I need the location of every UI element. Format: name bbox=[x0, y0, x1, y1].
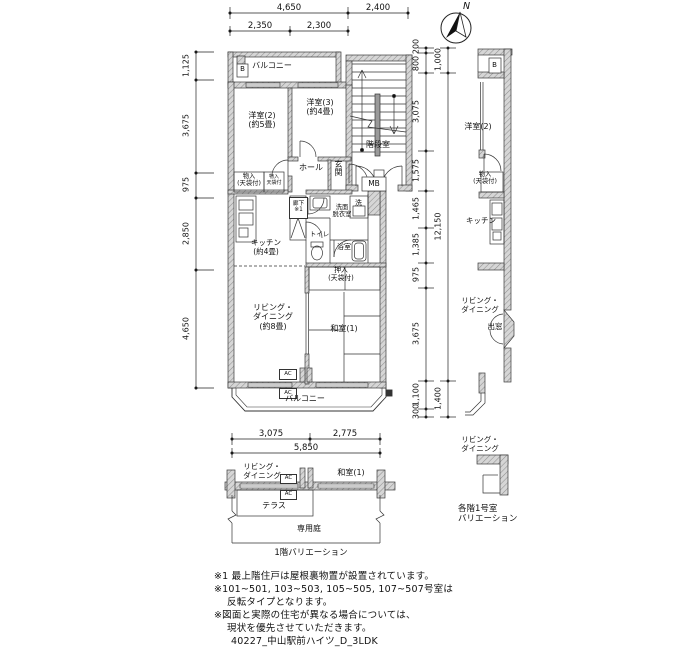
label-toilet: トイレ bbox=[307, 231, 332, 239]
label-mb: MB bbox=[364, 180, 384, 189]
ac-unit-1f-a: AC bbox=[280, 474, 297, 484]
label-entrance: 玄関 bbox=[333, 161, 344, 178]
dim-top-2300: 2,300 bbox=[299, 21, 339, 31]
variation-right-walls bbox=[465, 49, 514, 495]
dim-ro-1000: 1,000 bbox=[434, 38, 445, 82]
label-terrace: テラス bbox=[258, 501, 290, 510]
label-right-bedroom2: 洋室(2) bbox=[459, 122, 497, 131]
label-bedroom2: 洋室(2) (約5畳) bbox=[234, 111, 290, 130]
label-kitchen: キッチン (約4畳) bbox=[242, 239, 290, 257]
label-closet-left: 物入 (天袋付) bbox=[233, 173, 265, 188]
label-right-living: リビング・ ダイニング bbox=[458, 297, 502, 315]
ac-unit-room: AC bbox=[279, 369, 297, 380]
label-right-closet: 物入 (天袋付) bbox=[464, 171, 506, 186]
dim-left-2850: 2,850 bbox=[182, 212, 193, 256]
floor-plan-page: N 4,650 2,400 2,350 2,300 1,125 3,675 97… bbox=[0, 0, 700, 650]
dim-top-2350: 2,350 bbox=[240, 21, 280, 31]
dim-left-975: 975 bbox=[182, 163, 193, 207]
label-washitsu: 和室(1) bbox=[325, 324, 363, 333]
dim-ri-800: 800 bbox=[412, 42, 423, 86]
label-laundry: 洗 bbox=[352, 199, 365, 207]
compass-icon bbox=[441, 12, 471, 43]
label-oshiire: 押入 (天袋付) bbox=[320, 266, 362, 282]
footnote-5: 現状を優先させていただきます。 bbox=[227, 620, 372, 634]
label-bay-window: 出窓 bbox=[484, 323, 506, 332]
dim-ro-12150: 12,150 bbox=[434, 205, 445, 249]
dim-ri-3675: 3,675 bbox=[412, 312, 423, 356]
label-1f-washitsu: 和室(1) bbox=[330, 468, 372, 477]
footnote-3: 反転タイプとなります。 bbox=[227, 594, 332, 608]
dim-top-2400: 2,400 bbox=[358, 3, 398, 13]
dim-1f-3075: 3,075 bbox=[251, 429, 291, 439]
dim-1f-5850: 5,850 bbox=[286, 443, 326, 453]
dim-ri-3075: 3,075 bbox=[412, 90, 423, 134]
right-balcony-b-tag: B bbox=[490, 61, 499, 69]
label-living: リビング・ ダイニング (約8畳) bbox=[247, 303, 299, 331]
dim-left-3675: 3,675 bbox=[182, 104, 193, 148]
footnote-1: ※1 最上階住戸は屋根裏物置が設置されています。 bbox=[214, 568, 434, 582]
footnote-4: ※図面と実際の住宅が異なる場合については、 bbox=[214, 607, 416, 621]
label-bath: 浴室 bbox=[333, 243, 355, 251]
label-hall: ホール bbox=[294, 163, 328, 172]
dim-ri-300: 300 bbox=[412, 390, 423, 434]
caption-right-variation: 各階1号室 バリエーション bbox=[458, 504, 528, 524]
compass-north-label: N bbox=[463, 1, 470, 12]
label-garden: 専用庭 bbox=[291, 524, 327, 533]
balcony-b-tag: B bbox=[238, 65, 247, 73]
dim-1f-2775: 2,775 bbox=[325, 429, 365, 439]
ac-unit-1f-b: AC bbox=[280, 490, 297, 500]
label-closet-small: 物入 天袋付 bbox=[264, 175, 284, 187]
dim-left-1125: 1,125 bbox=[182, 44, 193, 88]
label-stairwell: 階段室 bbox=[352, 140, 404, 149]
label-right-kitchen: キッチン bbox=[463, 217, 499, 226]
label-1f-living: リビング・ ダイニング bbox=[239, 463, 285, 481]
label-right-living2: リビング・ ダイニング bbox=[458, 436, 502, 454]
footnote-2: ※101~501, 103~503, 105~505, 107~507号室は bbox=[214, 581, 453, 595]
label-balcony-top: バルコニー bbox=[250, 61, 294, 70]
label-corridor: 廊下 ※1 bbox=[289, 197, 308, 219]
label-bedroom3: 洋室(3) (約4畳) bbox=[294, 98, 346, 117]
file-code: 40227_中山駅前ハイツ_D_3LDK bbox=[231, 633, 378, 647]
label-balcony-bottom: バルコニー bbox=[283, 394, 327, 403]
dim-top-4650: 4,650 bbox=[269, 3, 309, 13]
dim-ro-1400: 1,400 bbox=[434, 377, 445, 421]
dim-ri-975: 975 bbox=[412, 253, 423, 297]
caption-1f-variation: 1階バリエーション bbox=[268, 548, 354, 558]
dim-left-4650: 4,650 bbox=[182, 307, 193, 351]
